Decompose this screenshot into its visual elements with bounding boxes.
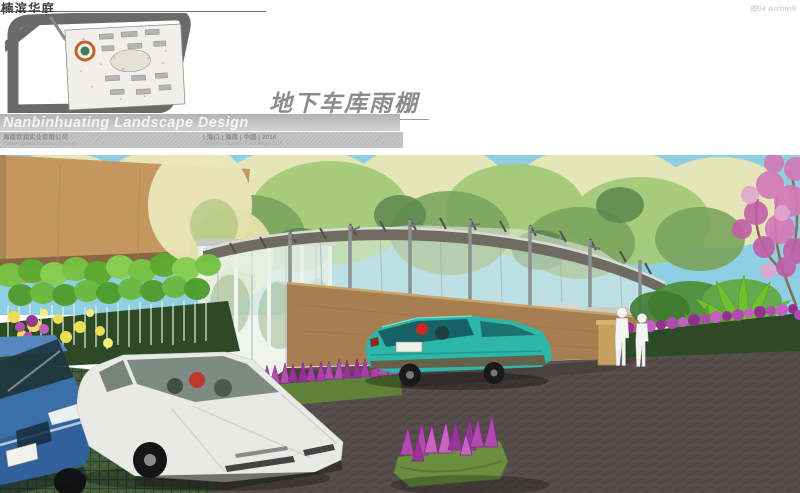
site-plan-map <box>5 13 197 113</box>
rendering-scene <box>0 155 800 493</box>
location-en: | Haikou | Hainan | P.R.China | 2016 <box>203 141 283 147</box>
location-cn: | 海口 | 海南 | 中国 | 2016 <box>203 134 283 141</box>
info-band: 海南钦润实业有限公司 Hainan Qinrun Industrial Co.,… <box>0 132 403 148</box>
company-name-cn: 海南钦润实业有限公司 <box>3 134 203 141</box>
car-teal-hatchback <box>365 316 552 390</box>
company-name-en: Hainan Qinrun Industrial Co., Ltd. <box>3 141 203 147</box>
watermark-label: 图04 Archteik <box>750 3 797 14</box>
design-title-band: Nanbinhuating Landscape Design <box>0 114 400 131</box>
site-plan-drawing <box>65 24 185 110</box>
company-block: 海南钦润实业有限公司 Hainan Qinrun Industrial Co.,… <box>0 134 203 147</box>
design-title: Nanbinhuating Landscape Design <box>0 115 249 131</box>
location-block: | 海口 | 海南 | 中国 | 2016 | Haikou | Hainan … <box>203 134 283 147</box>
presentation-sheet: 楠滨华庭 图04 Archteik <box>0 0 800 493</box>
